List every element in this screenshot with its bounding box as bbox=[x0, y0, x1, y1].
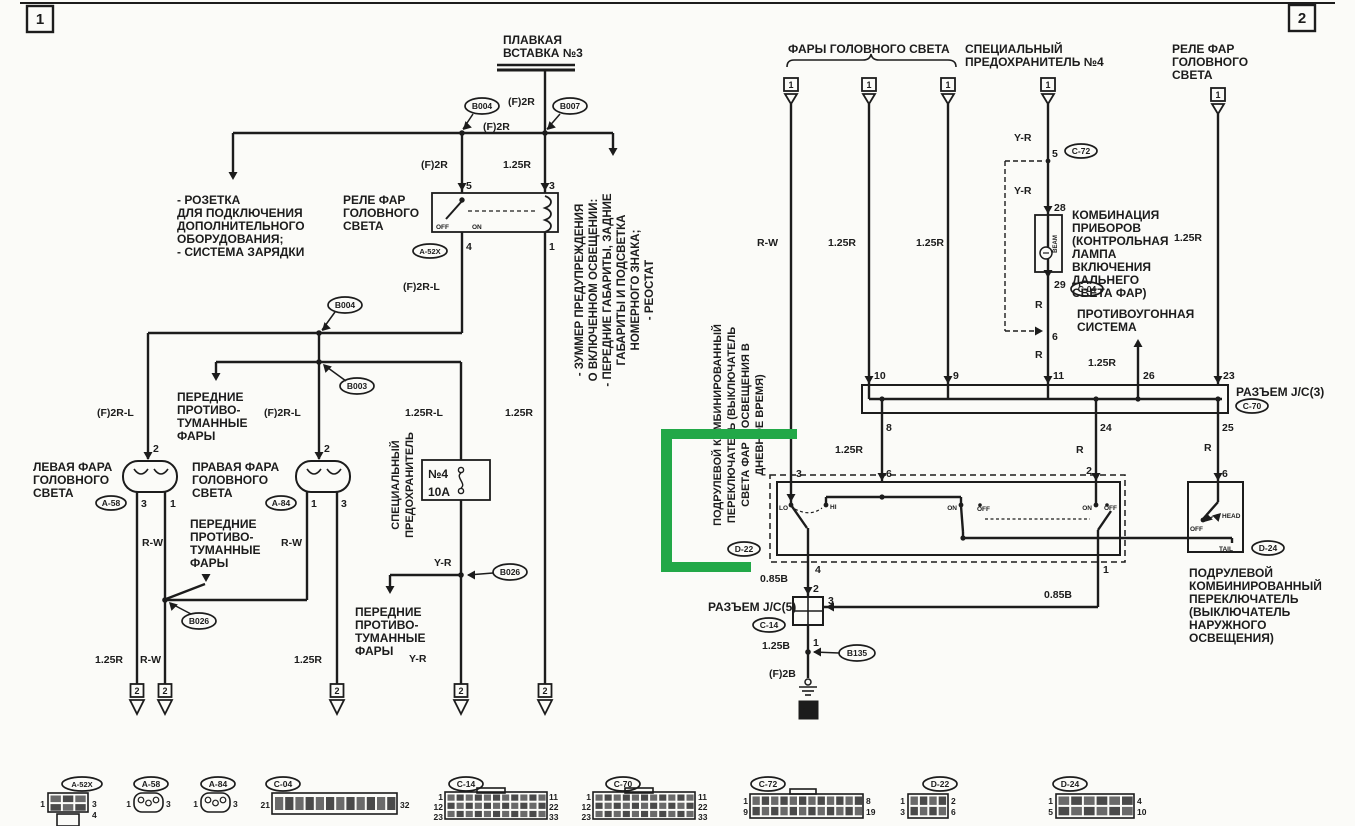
pin-cell bbox=[623, 803, 630, 809]
diagram-label: ГОЛОВНОГО bbox=[1172, 55, 1248, 69]
diagram-label: ФАРЫ bbox=[355, 644, 393, 658]
pin-cell bbox=[51, 796, 61, 803]
diagram-label: 23 bbox=[582, 812, 592, 822]
connector-ref-label: A-84 bbox=[272, 498, 291, 508]
diagram-label: СПЕЦИАЛЬНЫЙ bbox=[389, 440, 402, 530]
diagram-label: ON bbox=[472, 224, 482, 231]
diagram-label: 6 bbox=[1222, 468, 1228, 480]
diagram-label: ПРОТИВО- bbox=[190, 530, 253, 544]
diagram-label: 1 bbox=[945, 80, 950, 90]
diagram-label: R-W bbox=[281, 537, 302, 549]
diagram-label: ДАЛЬНЕГО bbox=[1072, 273, 1139, 287]
diagram-label: 0.85B bbox=[760, 573, 788, 585]
pin-cell bbox=[336, 797, 344, 810]
pin-cell bbox=[855, 807, 862, 815]
diagram-label: 28 bbox=[1054, 202, 1066, 214]
diagram-label: 29 bbox=[1054, 279, 1066, 291]
diagram-label: 4 bbox=[815, 564, 821, 576]
pin-cell bbox=[448, 795, 455, 801]
diagram-label: ДНЕВНОЕ ВРЕМЯ) bbox=[754, 374, 766, 476]
diagram-label: 3 bbox=[828, 595, 834, 607]
diagram-label: ПЕРЕДНИЕ bbox=[177, 390, 243, 404]
diagram-label: СВЕТА ФАР) bbox=[1072, 286, 1147, 300]
right-headlamp-symbol bbox=[296, 461, 350, 492]
wiring-diagram-canvas: B004B007B004B003B026B026B135A-52XA-58A-8… bbox=[0, 0, 1355, 826]
diagram-label: 24 bbox=[1100, 422, 1112, 434]
connector-ref-label: A-52X bbox=[71, 780, 92, 789]
diagram-label: 19 bbox=[866, 807, 876, 817]
diagram-label: ПЕРЕДНИЕ bbox=[190, 517, 256, 531]
diagram-label: 1 bbox=[36, 11, 44, 28]
pin-cell bbox=[780, 797, 787, 805]
diagram-label: 2 bbox=[1086, 465, 1092, 477]
diagram-label: 33 bbox=[698, 812, 708, 822]
diagram-label: ГОЛОВНОГО bbox=[343, 206, 419, 220]
diagram-label: ПОДРУЛЕВОЙ КОМБИНИРОВАННЫЙ bbox=[711, 324, 724, 526]
diagram-label: РАЗЪЕМ J/C(5) bbox=[708, 600, 796, 614]
diagram-label: 1 bbox=[549, 241, 555, 253]
pin-cell bbox=[1122, 797, 1133, 805]
connector-ref-label: A-58 bbox=[102, 498, 121, 508]
diagram-label: OFF bbox=[436, 224, 449, 231]
pin-cell bbox=[818, 807, 825, 815]
diagram-label: ПРОТИВО- bbox=[355, 618, 418, 632]
pin-cell bbox=[641, 811, 648, 817]
connector-ref-label: C-14 bbox=[457, 779, 476, 789]
connector-ref-label: D-24 bbox=[1259, 543, 1278, 553]
connector-ref-label: B135 bbox=[847, 648, 868, 658]
pin-cell bbox=[753, 807, 760, 815]
pin-cell bbox=[920, 807, 927, 815]
connector-ref-label: C-72 bbox=[1072, 146, 1091, 156]
diagram-label: 1 bbox=[743, 796, 748, 806]
diagram-label: 6 bbox=[1052, 331, 1058, 343]
pin-cell bbox=[63, 804, 73, 811]
diagram-label: 4 bbox=[466, 241, 472, 253]
diagram-label: ПОДРУЛЕВОЙ bbox=[1189, 565, 1273, 580]
diagram-label: (F)2R-L bbox=[264, 407, 301, 419]
diagram-label: 4 bbox=[1137, 796, 1142, 806]
diagram-label: СПЕЦИАЛЬНЫЙ bbox=[965, 41, 1063, 56]
diagram-label: 1.25R bbox=[828, 237, 856, 249]
diagram-label: ПРЕДОХРАНИТЕЛЬ bbox=[404, 432, 416, 538]
diagram-label: 22 bbox=[549, 802, 559, 812]
diagram-label: 1.25R bbox=[95, 654, 123, 666]
diagram-label: ПРАВАЯ ФАРА bbox=[192, 460, 279, 474]
diagram-label: 2 bbox=[813, 583, 819, 595]
diagram-label: ТУМАННЫЕ bbox=[177, 416, 248, 430]
diagram-label: 2 bbox=[334, 686, 339, 696]
diagram-label: 5 bbox=[1052, 148, 1058, 160]
diagram-label: 25 bbox=[1222, 422, 1234, 434]
pin-cell bbox=[295, 797, 303, 810]
pin-cell bbox=[808, 797, 815, 805]
diagram-label: 0.85B bbox=[1044, 589, 1072, 601]
diagram-label: - РОЗЕТКА bbox=[177, 193, 241, 207]
pin-cell bbox=[484, 795, 491, 801]
diagram-label: ТУМАННЫЕ bbox=[355, 631, 426, 645]
diagram-label: 1.25R bbox=[505, 407, 533, 419]
diagram-label: ПЕРЕКЛЮЧАТЕЛЬ (ВЫКЛЮЧАТЕЛЬ bbox=[726, 327, 738, 523]
pin-cell bbox=[659, 803, 666, 809]
diagram-label: - РЕОСТАТ bbox=[644, 260, 656, 320]
pin-cell bbox=[387, 797, 395, 810]
pin-cell bbox=[687, 795, 694, 801]
pin-cell bbox=[836, 797, 843, 805]
diagram-label: (F)2R bbox=[508, 96, 535, 108]
pin-cell bbox=[285, 797, 293, 810]
diagram-label: R-W bbox=[140, 654, 161, 666]
top-entry-markers bbox=[784, 78, 1225, 114]
diagram-label: 3 bbox=[796, 468, 802, 480]
pin-cell bbox=[632, 811, 639, 817]
pin-cell bbox=[632, 803, 639, 809]
pin-cell bbox=[466, 795, 473, 801]
pin-cell bbox=[475, 795, 482, 801]
pin-cell bbox=[75, 804, 85, 811]
diagram-label: 3 bbox=[92, 799, 97, 809]
connector-ref-label: B026 bbox=[189, 616, 210, 626]
pin-cell bbox=[511, 795, 518, 801]
diagram-label: 11 bbox=[549, 792, 558, 802]
pin-cell bbox=[1071, 807, 1082, 815]
pin-cell bbox=[596, 795, 603, 801]
pin-cell bbox=[493, 803, 500, 809]
diagram-label: 12 bbox=[582, 802, 592, 812]
diagram-label: 1.25R bbox=[835, 444, 863, 456]
diagram-text-labels: 12ПЛАВКАЯВСТАВКА №3(F)2R(F)2R(F)2R1.25R-… bbox=[33, 10, 1324, 822]
diagram-label: 26 bbox=[1143, 370, 1155, 382]
diagram-label: 2 bbox=[951, 796, 956, 806]
pin-cell bbox=[762, 797, 769, 805]
diagram-label: ДЛЯ ПОДКЛЮЧЕНИЯ bbox=[177, 206, 303, 220]
pin-cell bbox=[790, 797, 797, 805]
diagram-label: 12 bbox=[434, 802, 444, 812]
pin-cell bbox=[457, 795, 464, 801]
pin-cell bbox=[650, 811, 657, 817]
connector-a84-outline bbox=[201, 793, 230, 812]
diagram-label: ПРОТИВО- bbox=[177, 403, 240, 417]
diagram-label: 1 bbox=[126, 799, 131, 809]
diagram-label: ПРОТИВОУГОННАЯ bbox=[1077, 307, 1194, 321]
pin-cell bbox=[502, 803, 509, 809]
diagram-label: 1 bbox=[1215, 90, 1220, 100]
diagram-label: - ЗУММЕР ПРЕДУПРЕЖДЕНИЯ bbox=[574, 204, 586, 376]
pin-cell bbox=[357, 797, 365, 810]
diagram-label: 1.25R bbox=[1174, 232, 1202, 244]
diagram-label: 3 bbox=[900, 807, 905, 817]
diagram-label: 2 bbox=[324, 443, 330, 455]
column-switch-dashed-box bbox=[770, 475, 1125, 562]
connector-ref-label: C-14 bbox=[760, 620, 779, 630]
diagram-label: 1 bbox=[193, 799, 198, 809]
diagram-label: НАРУЖНОГО bbox=[1189, 618, 1266, 632]
diagram-label: 1 bbox=[40, 799, 45, 809]
pin-cell bbox=[1059, 807, 1070, 815]
diagram-label: РЕЛЕ ФАР bbox=[343, 193, 405, 207]
pin-cell bbox=[659, 811, 666, 817]
pin-cell bbox=[502, 795, 509, 801]
diagram-label: 1.25R bbox=[1088, 357, 1116, 369]
diagram-label: OFF bbox=[977, 506, 990, 513]
diagram-label: R bbox=[1204, 442, 1212, 454]
connector-ref-label: A-58 bbox=[142, 779, 161, 789]
diagram-label: 10 bbox=[874, 370, 886, 382]
diagram-label: 23 bbox=[1223, 370, 1235, 382]
diagram-label: О ВКЛЮЧЕННОМ ОСВЕЩЕНИИ: bbox=[588, 199, 600, 382]
diagram-label: (F)2B bbox=[769, 668, 796, 680]
wires-left-page bbox=[137, 65, 613, 684]
diagram-label: 9 bbox=[953, 370, 959, 382]
diagram-label: ВСТАВКА №3 bbox=[503, 46, 583, 60]
diagram-label: 5 bbox=[466, 180, 472, 192]
diagram-label: HI bbox=[830, 504, 837, 511]
diagram-label: 2 bbox=[162, 686, 167, 696]
diagram-label: R bbox=[1035, 299, 1043, 311]
diagram-label: ON bbox=[947, 505, 957, 512]
diagram-label: ОБОРУДОВАНИЯ; bbox=[177, 232, 284, 246]
pin-cell bbox=[846, 807, 853, 815]
diagram-label: 1.25B bbox=[762, 640, 790, 652]
diagram-label: ПЛАВКАЯ bbox=[503, 33, 562, 47]
pin-cell bbox=[457, 811, 464, 817]
diagram-label: 11 bbox=[1053, 370, 1064, 382]
diagram-label: 2 bbox=[458, 686, 463, 696]
pin-cell bbox=[275, 797, 283, 810]
diagram-label: OFF bbox=[1104, 505, 1117, 512]
pin-cell bbox=[650, 795, 657, 801]
diagram-label: 1 bbox=[813, 637, 819, 649]
connector-ref-label: A-52X bbox=[419, 247, 440, 256]
pin-cell bbox=[911, 807, 918, 815]
connector-ref-label: C-70 bbox=[614, 779, 633, 789]
diagram-label: Y-R bbox=[409, 653, 427, 665]
diagram-label: 1 bbox=[438, 792, 443, 802]
diagram-label: 32 bbox=[400, 800, 410, 810]
pin-cell bbox=[668, 795, 675, 801]
pin-cell bbox=[836, 807, 843, 815]
connector-ref-label: B003 bbox=[347, 381, 368, 391]
pin-cell bbox=[367, 797, 375, 810]
pin-cell bbox=[484, 803, 491, 809]
diagram-label: 10A bbox=[428, 485, 450, 499]
pin-cell bbox=[799, 797, 806, 805]
diagram-label: 21 bbox=[261, 800, 271, 810]
pin-cell bbox=[687, 803, 694, 809]
pin-cell bbox=[326, 797, 334, 810]
diagram-label: LO bbox=[779, 505, 788, 512]
diagram-label: 1 bbox=[311, 498, 317, 510]
connector-ref-label: B007 bbox=[560, 101, 581, 111]
pin-cell bbox=[1122, 807, 1133, 815]
pin-cell bbox=[659, 795, 666, 801]
diagram-label: (КОНТРОЛЬНАЯ bbox=[1072, 234, 1169, 248]
connector-ref-label: B004 bbox=[472, 101, 493, 111]
pin-cell bbox=[668, 803, 675, 809]
left-headlamp-symbol bbox=[123, 461, 177, 492]
pin-cell bbox=[346, 797, 354, 810]
diagram-label: 9 bbox=[743, 807, 748, 817]
diagram-label: - СИСТЕМА ЗАРЯДКИ bbox=[177, 245, 304, 259]
diagram-label: HEAD bbox=[1222, 513, 1241, 520]
diagram-label: 11 bbox=[698, 792, 707, 802]
connector-a58-outline bbox=[134, 793, 163, 812]
diagram-label: ПРИБОРОВ bbox=[1072, 221, 1141, 235]
diagram-label: (F)2R bbox=[483, 121, 510, 133]
pin-cell bbox=[920, 797, 927, 805]
bottom-ground-markers bbox=[130, 684, 552, 714]
diagram-label: 2 bbox=[153, 443, 159, 455]
diagram-label: КОМБИНАЦИЯ bbox=[1072, 208, 1159, 222]
diagram-label: (F)2R-L bbox=[403, 281, 440, 293]
diagram-label: Y-R bbox=[1014, 185, 1032, 197]
diagram-label: СВЕТА bbox=[33, 486, 74, 500]
diagram-label: (ВЫКЛЮЧАТЕЛЬ bbox=[1189, 605, 1291, 619]
diagram-label: ЛАМПА bbox=[1072, 247, 1117, 261]
diagram-label: 2 bbox=[134, 686, 139, 696]
pin-cell bbox=[614, 803, 621, 809]
diagram-label: 3 bbox=[233, 799, 238, 809]
diagram-label: 22 bbox=[698, 802, 708, 812]
diagram-label: 3 bbox=[141, 498, 147, 510]
pin-cell bbox=[539, 811, 546, 817]
pin-cell bbox=[475, 811, 482, 817]
pin-cell bbox=[687, 811, 694, 817]
pin-cell bbox=[632, 795, 639, 801]
pin-cell bbox=[641, 803, 648, 809]
diagram-label: 8 bbox=[886, 422, 892, 434]
diagram-label: 2 bbox=[542, 686, 547, 696]
diagram-label: ФАРЫ bbox=[190, 556, 228, 570]
diagram-label: ПЕРЕКЛЮЧАТЕЛЬ bbox=[1189, 592, 1299, 606]
pin-cell bbox=[650, 803, 657, 809]
pin-cell bbox=[929, 807, 936, 815]
diagram-label: ГОЛОВНОГО bbox=[33, 473, 109, 487]
pin-cell bbox=[911, 797, 918, 805]
pin-cell bbox=[1084, 797, 1095, 805]
pin-cell bbox=[596, 811, 603, 817]
connector-ref-label: C-04 bbox=[274, 779, 293, 789]
pin-cell bbox=[1084, 807, 1095, 815]
pin-cell bbox=[493, 795, 500, 801]
pin-cell bbox=[484, 811, 491, 817]
wiring-diagram-page: B004B007B004B003B026B026B135A-52XA-58A-8… bbox=[0, 0, 1355, 826]
diagram-label: R bbox=[1035, 349, 1043, 361]
pin-cell bbox=[605, 811, 612, 817]
diagram-label: 10 bbox=[1137, 807, 1147, 817]
pin-cell bbox=[520, 795, 527, 801]
diagram-label: СВЕТА bbox=[343, 219, 384, 233]
pin-cell bbox=[502, 811, 509, 817]
pin-cell bbox=[827, 797, 834, 805]
pin-cell bbox=[511, 811, 518, 817]
pin-cell bbox=[448, 811, 455, 817]
diagram-label: 1.25R bbox=[916, 237, 944, 249]
diagram-label: 1 bbox=[788, 80, 793, 90]
pin-cell bbox=[855, 797, 862, 805]
pin-cell bbox=[605, 795, 612, 801]
diagram-label: КОМБИНИРОВАННЫЙ bbox=[1189, 578, 1322, 593]
diagram-label: ЛЕВАЯ ФАРА bbox=[33, 460, 113, 474]
pin-cell bbox=[605, 803, 612, 809]
pin-cell bbox=[818, 797, 825, 805]
connector-ref-label: D-22 bbox=[735, 544, 754, 554]
diagram-label: 1 bbox=[1048, 796, 1053, 806]
pin-cell bbox=[939, 797, 946, 805]
diagram-label: R bbox=[1076, 444, 1084, 456]
diagram-label: R-W bbox=[757, 237, 778, 249]
relay-coil bbox=[545, 196, 551, 232]
diagram-label: (F)2R-L bbox=[97, 407, 134, 419]
pin-cell bbox=[808, 807, 815, 815]
diagram-label: ФАРЫ bbox=[177, 429, 215, 443]
diagram-label: 10 bbox=[803, 706, 814, 717]
pin-cell bbox=[771, 807, 778, 815]
diagram-label: ГОЛОВНОГО bbox=[192, 473, 268, 487]
diagram-label: ВКЛЮЧЕНИЯ bbox=[1072, 260, 1151, 274]
pin-cell bbox=[63, 796, 73, 803]
diagram-label: РАЗЪЕМ J/C(3) bbox=[1236, 385, 1324, 399]
diagram-label: ГАБАРИТЫ И ПОДСВЕТКА bbox=[616, 215, 628, 366]
diagram-label: 1.25R-L bbox=[405, 407, 444, 419]
diagram-label: - ПЕРЕДНИЕ ГАБАРИТЫ, ЗАДНИЕ bbox=[602, 193, 614, 386]
diagram-label: 1 bbox=[900, 796, 905, 806]
pin-cell bbox=[762, 807, 769, 815]
pin-cell bbox=[511, 803, 518, 809]
diagram-label: СИСТЕМА bbox=[1077, 320, 1137, 334]
connector-ref-label: C-70 bbox=[1243, 401, 1262, 411]
diagram-label: 1.25R bbox=[294, 654, 322, 666]
connector-ref-label: B026 bbox=[500, 567, 521, 577]
diagram-label: 33 bbox=[549, 812, 559, 822]
diagram-label: ПРЕДОХРАНИТЕЛЬ №4 bbox=[965, 55, 1104, 69]
diagram-label: РЕЛЕ ФАР bbox=[1172, 42, 1234, 56]
diagram-label: ОСВЕЩЕНИЯ) bbox=[1189, 631, 1274, 645]
pin-cell bbox=[539, 803, 546, 809]
diagram-label: НОМЕРНОГО ЗНАКА; bbox=[630, 230, 642, 351]
connector-ref-label: C-72 bbox=[759, 779, 778, 789]
continuation-markers bbox=[130, 78, 1225, 714]
pin-cell bbox=[929, 797, 936, 805]
pin-cell bbox=[75, 796, 85, 803]
pin-cell bbox=[677, 803, 684, 809]
diagram-label: (F)2R bbox=[421, 159, 448, 171]
diagram-label: Y-R bbox=[1014, 132, 1032, 144]
connector-reference-ovals: B004B007B004B003B026B026B135A-52XA-58A-8… bbox=[62, 98, 1284, 791]
boxes-right-page bbox=[770, 54, 1243, 719]
pin-cell bbox=[846, 797, 853, 805]
diagram-label: ФАРЫ ГОЛОВНОГО СВЕТА bbox=[788, 42, 950, 56]
diagram-label: 3 bbox=[341, 498, 347, 510]
connector-pinout-row bbox=[48, 788, 1134, 826]
diagram-label: ТУМАННЫЕ bbox=[190, 543, 261, 557]
diagram-label: ДОПОЛНИТЕЛЬНОГО bbox=[177, 219, 305, 233]
pin-cell bbox=[1097, 807, 1108, 815]
pin-cell bbox=[596, 803, 603, 809]
pin-cell bbox=[641, 795, 648, 801]
pin-cell bbox=[1071, 797, 1082, 805]
diagram-label: TAIL bbox=[1219, 546, 1233, 553]
diagram-label: 8 bbox=[866, 796, 871, 806]
diagram-label: 23 bbox=[434, 812, 444, 822]
wires-right-page bbox=[791, 104, 1232, 678]
connector-ref-label: D-24 bbox=[1061, 779, 1080, 789]
diagram-label: 6 bbox=[951, 807, 956, 817]
diagram-label: 3 bbox=[166, 799, 171, 809]
pin-cell bbox=[1109, 797, 1120, 805]
diagram-label: 1 bbox=[1045, 80, 1050, 90]
pin-cell bbox=[520, 811, 527, 817]
